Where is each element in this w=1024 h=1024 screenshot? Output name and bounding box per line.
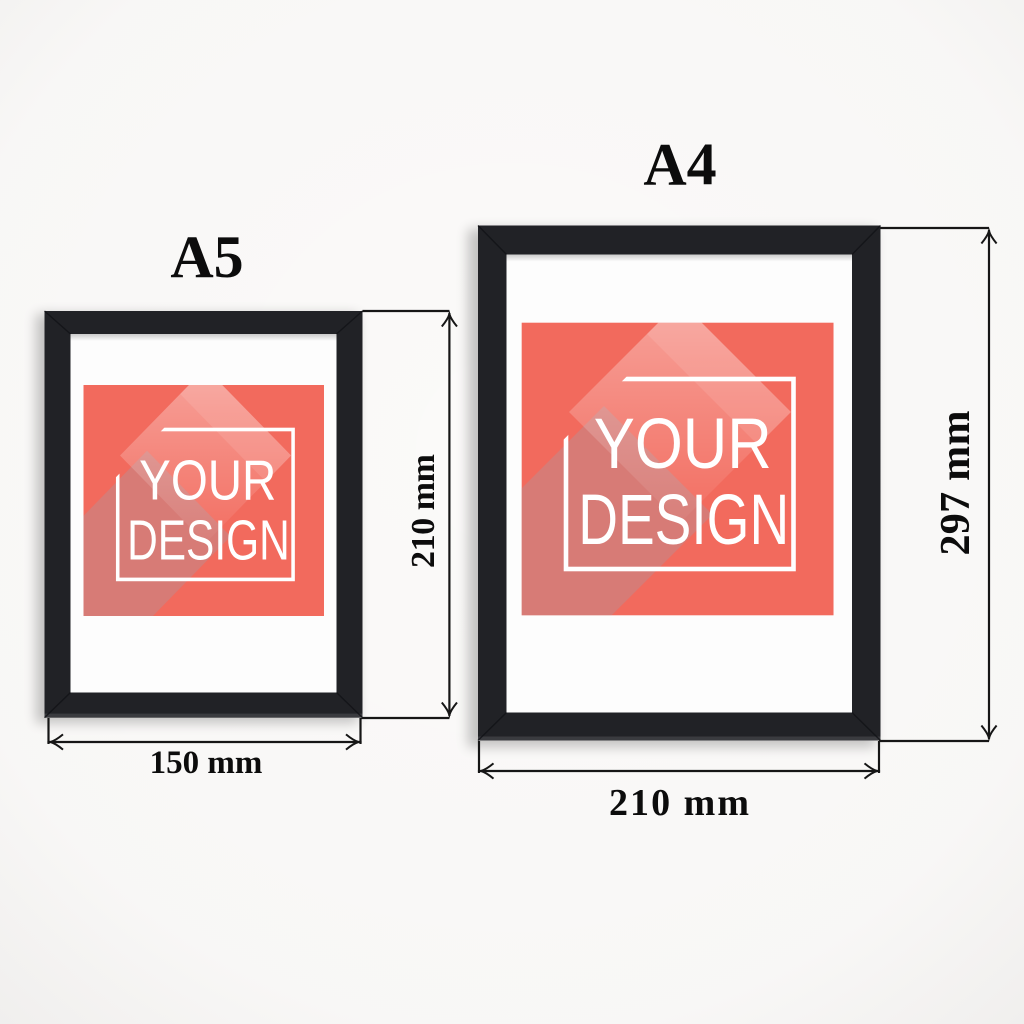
- svg-text:210 mm: 210 mm: [609, 782, 749, 824]
- svg-text:A5: A5: [170, 224, 243, 290]
- svg-text:150 mm: 150 mm: [150, 745, 263, 781]
- svg-text:210 mm: 210 mm: [405, 454, 442, 568]
- svg-text:A4: A4: [643, 132, 716, 198]
- svg-text:297 mm: 297 mm: [933, 411, 979, 556]
